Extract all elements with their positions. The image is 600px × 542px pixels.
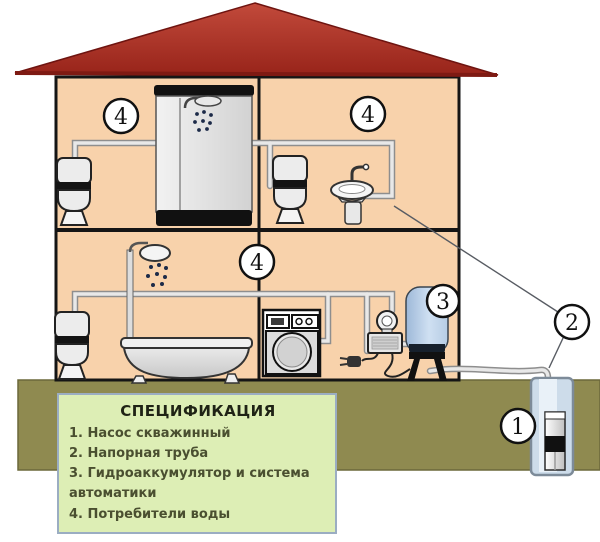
marker-consumer-floor2-right: 4 [351, 97, 385, 131]
svg-text:2: 2 [565, 311, 579, 336]
legend-item: 1. Насос скважинный [69, 424, 327, 444]
washing-machine-icon [263, 310, 320, 376]
svg-text:4: 4 [361, 103, 375, 128]
legend-box: СПЕЦИФИКАЦИЯ 1. Насос скважинный 2. Напо… [57, 393, 337, 534]
marker-well-pump: 1 [501, 409, 535, 443]
well-pump [545, 412, 565, 470]
legend-item: 4. Потребители воды [69, 505, 327, 525]
svg-text:3: 3 [436, 290, 450, 315]
svg-text:4: 4 [114, 105, 128, 130]
marker-pressure-pipe: 2 [555, 305, 589, 339]
water-supply-diagram: 4 4 4 3 2 1 СПЕЦИФИКАЦИЯ 1. Насос скважи… [0, 0, 600, 542]
shower-cabin-icon [154, 85, 254, 226]
legend-item: 3. Гидроаккумулятор и система автоматики [69, 464, 327, 504]
marker-consumer-floor1: 4 [240, 245, 274, 279]
roof [15, 3, 498, 75]
automation-control-box [368, 333, 402, 353]
legend-item: 2. Напорная труба [69, 444, 327, 464]
marker-hydroaccumulator: 3 [427, 285, 459, 317]
svg-text:1: 1 [511, 415, 525, 440]
svg-text:4: 4 [250, 251, 264, 276]
legend-title: СПЕЦИФИКАЦИЯ [69, 402, 327, 420]
marker-consumer-floor2-left: 4 [104, 99, 138, 133]
